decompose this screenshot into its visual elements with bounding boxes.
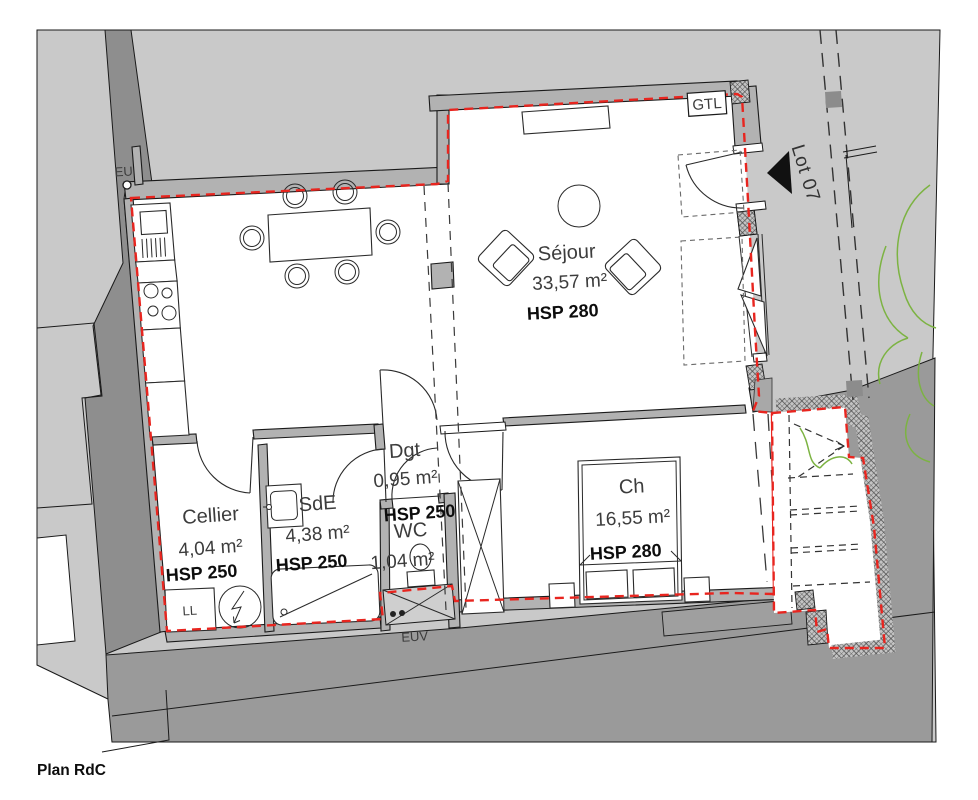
eu-point xyxy=(123,181,131,189)
room-area-chambre: 16,55 m² xyxy=(595,506,671,531)
room-hsp-sejour: HSP 280 xyxy=(526,300,599,324)
terrace-hatch-notch-a xyxy=(795,590,815,610)
room-hsp-chambre: HSP 280 xyxy=(589,540,662,564)
terrace-hatch-notch-b xyxy=(806,610,828,645)
washbasin xyxy=(263,484,303,528)
room-name-sde: SdE xyxy=(298,492,337,517)
room-label-sejour: Séjour 33,57 m² HSP 280 xyxy=(526,240,607,323)
walkway-marker-bottom xyxy=(846,380,863,397)
walkway-marker-top xyxy=(825,91,842,108)
gtl-label: GTL xyxy=(692,95,722,114)
euv-label: EUV xyxy=(401,628,429,645)
insulation-hatch-mid xyxy=(737,209,757,236)
plan-title: Plan RdC xyxy=(37,762,106,779)
insulation-hatch-top xyxy=(730,80,750,104)
nightstand-right xyxy=(684,577,710,602)
washing-machine: LL xyxy=(165,588,216,632)
kitchen-sink xyxy=(140,211,168,235)
room-area-dgt: 0,95 m² xyxy=(373,467,439,492)
floorplan-canvas: LL xyxy=(0,0,978,800)
pillar xyxy=(431,262,454,289)
room-name-wc: WC xyxy=(393,519,428,543)
room-name-dgt: Dgt xyxy=(388,439,421,463)
room-area-wc: 1,04 m² xyxy=(370,549,436,574)
room-name-chambre: Ch xyxy=(618,475,645,498)
nightstand-left xyxy=(549,583,575,608)
wall-sde-dgt-a xyxy=(374,424,385,450)
wardrobe xyxy=(458,479,504,614)
gtl-box: GTL xyxy=(687,91,727,117)
room-area-sejour: 33,57 m² xyxy=(532,270,608,295)
washing-machine-label: LL xyxy=(182,603,197,619)
eu-label: EU xyxy=(114,163,133,179)
room-name-cellier: Cellier xyxy=(182,503,240,529)
room-name-sejour: Séjour xyxy=(537,240,596,265)
room-area-sde: 4,38 m² xyxy=(285,522,351,547)
room-area-cellier: 4,04 m² xyxy=(178,536,244,561)
terrace-hatch-top xyxy=(776,401,846,405)
